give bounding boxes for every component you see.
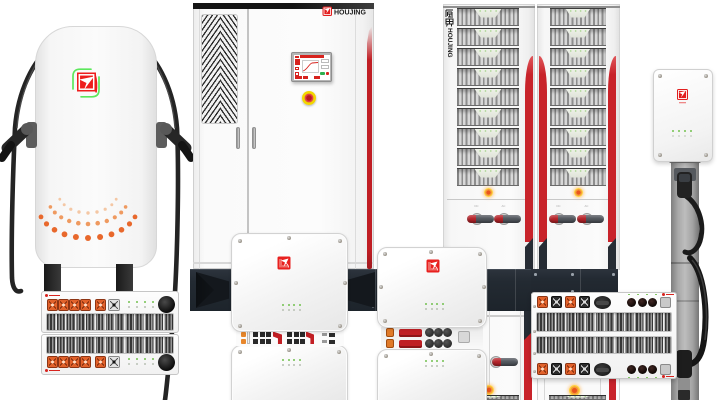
svg-text:HOUJING: HOUJING <box>334 10 366 17</box>
